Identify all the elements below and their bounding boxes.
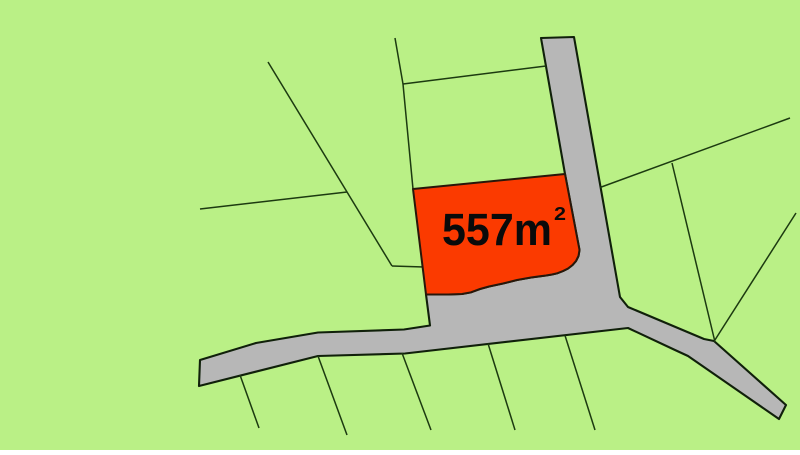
- svg-text:557m: 557m: [442, 204, 552, 255]
- svg-text:2: 2: [554, 204, 566, 224]
